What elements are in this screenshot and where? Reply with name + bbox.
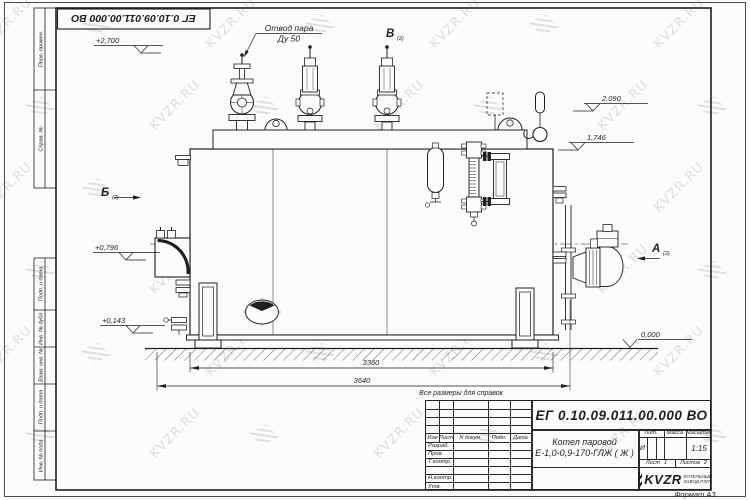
lit-value: И [638,437,647,459]
sheets-cell: Листов 2 [675,459,712,467]
view-sheet: (2) [397,36,404,42]
elevation-value: +0,796 [95,243,119,252]
doc-number: ЕГ 0.10.09.011.00.000 ВО [531,401,712,429]
mass-header: Масса [664,429,686,437]
lifting-lug-left [265,119,287,130]
burner-unit [573,225,623,288]
elevation-2090: 2,090 [573,94,648,111]
elevation-0143: +0,143 [100,316,165,333]
view-sheet: (2) [112,195,119,201]
kvzr-logo-icon [638,472,642,487]
col-podp: Подп. [488,433,510,442]
view-label: В [386,28,394,40]
margin-strip: Перв. примен. Справ. № Подп. и дата Инв.… [34,8,56,480]
sheet-value: 1 [664,460,667,466]
elevation-value: +0,143 [102,316,126,325]
kvzr-logo-text: KVZR [644,472,681,487]
product-name: Котел паровой Е-1,0-0,9-170-ГЛЖ ( Ж ) [531,429,638,467]
left-nozzle-top [176,156,191,166]
col-data: Дата [510,433,531,442]
kvzr-caption-line2: ЗАВОД РЭП [684,479,710,484]
elevation-value: 0,000 [641,330,661,339]
col-list: Лист [439,433,453,442]
view-label: Б [101,187,109,199]
col-izm: Изм [426,433,439,442]
sheet-cell: Лист 1 [638,459,675,467]
support-foot-left [195,283,221,348]
reference-note: Все размеры для справок [415,390,503,397]
smoke-box [155,227,190,277]
role-utv: Утв. [426,482,453,491]
sheet-label: Лист [646,460,660,466]
role-prov: Пров. [426,450,453,458]
view-marker-v: В (2) [386,28,404,42]
top-stamp: ЕГ 0.10.09.011.00.000 ВО [58,9,211,29]
margin-label: Подп. и дата [39,267,45,301]
safety-valve-2 [373,45,401,130]
margin-label: Подп. и дата [39,390,45,424]
support-foot-right [512,288,538,348]
scale-value: 1:15 [686,437,712,459]
view-label: А [651,243,660,255]
lit-header: Лит. [638,429,664,437]
elevation-1746: 1,746 [558,133,634,150]
ground-line [145,349,658,361]
elevation-2700: +2,700 [94,36,163,53]
steam-callout-line2: Ду 50 [277,34,300,44]
col-ndokum: N докум. [453,433,488,442]
steam-outlet-valve [229,53,255,130]
kvzr-logo-caption: КОТЕЛЬНЫЙ ЗАВОД РЭП [684,474,712,484]
sheets-label: Листов [680,460,700,466]
margin-label: Справ. № [39,126,45,151]
elevation-value: 2,090 [601,94,622,103]
drain-fitting [164,318,187,336]
margin-label: Взам. инв. № [39,348,45,382]
role-razrab: Разраб. [426,442,453,450]
safety-valve-1 [296,45,324,130]
view-marker-a: А (2) [637,243,670,261]
role-nkontr: Н.контр. [426,474,453,482]
elevation-0000: 0,000 [623,330,692,348]
top-stamp-number: ЕГ 0.10.09.011.00.000 ВО [71,12,196,24]
elevation-value: 1,746 [587,133,607,142]
format-label: Формат А3 [650,490,740,499]
logo-cell: KVZR КОТЕЛЬНЫЙ ЗАВОД РЭП [638,467,712,491]
view-sheet: (2) [663,251,670,257]
rear-flange-column [553,187,576,331]
drawing-sheet: KVZR.RUKVZR.RUKVZR.RUKVZR.RUKVZR.RUKVZR.… [0,0,750,500]
level-indicator-column [491,154,510,205]
scale-header: Масштаб [686,429,712,437]
lifting-lug-right [498,118,522,130]
left-nozzles [176,280,190,297]
margin-label: Перв. примен. [39,31,45,68]
product-name-line1: Котел паровой [552,437,617,448]
sheets-value: 2 [704,460,707,466]
dimension-value: 3640 [354,376,372,385]
elevation-0796: +0,796 [93,243,160,260]
dimension-value: 3360 [363,358,381,367]
margin-label: Инв. № дубл. [39,311,45,345]
margin-label: Инв. № подл. [39,438,45,472]
view-marker-b: Б (2) [101,187,141,201]
steam-callout-line1: Отвод пара [265,23,314,33]
title-block: Изм Лист N докум. Подп. Дата Разраб. Про… [425,400,711,490]
role-tkontr: Т.контр. [426,458,453,466]
elevation-value: +2,700 [96,36,120,45]
product-name-line2: Е-1,0-0,9-170-ГЛЖ ( Ж ) [535,448,634,459]
